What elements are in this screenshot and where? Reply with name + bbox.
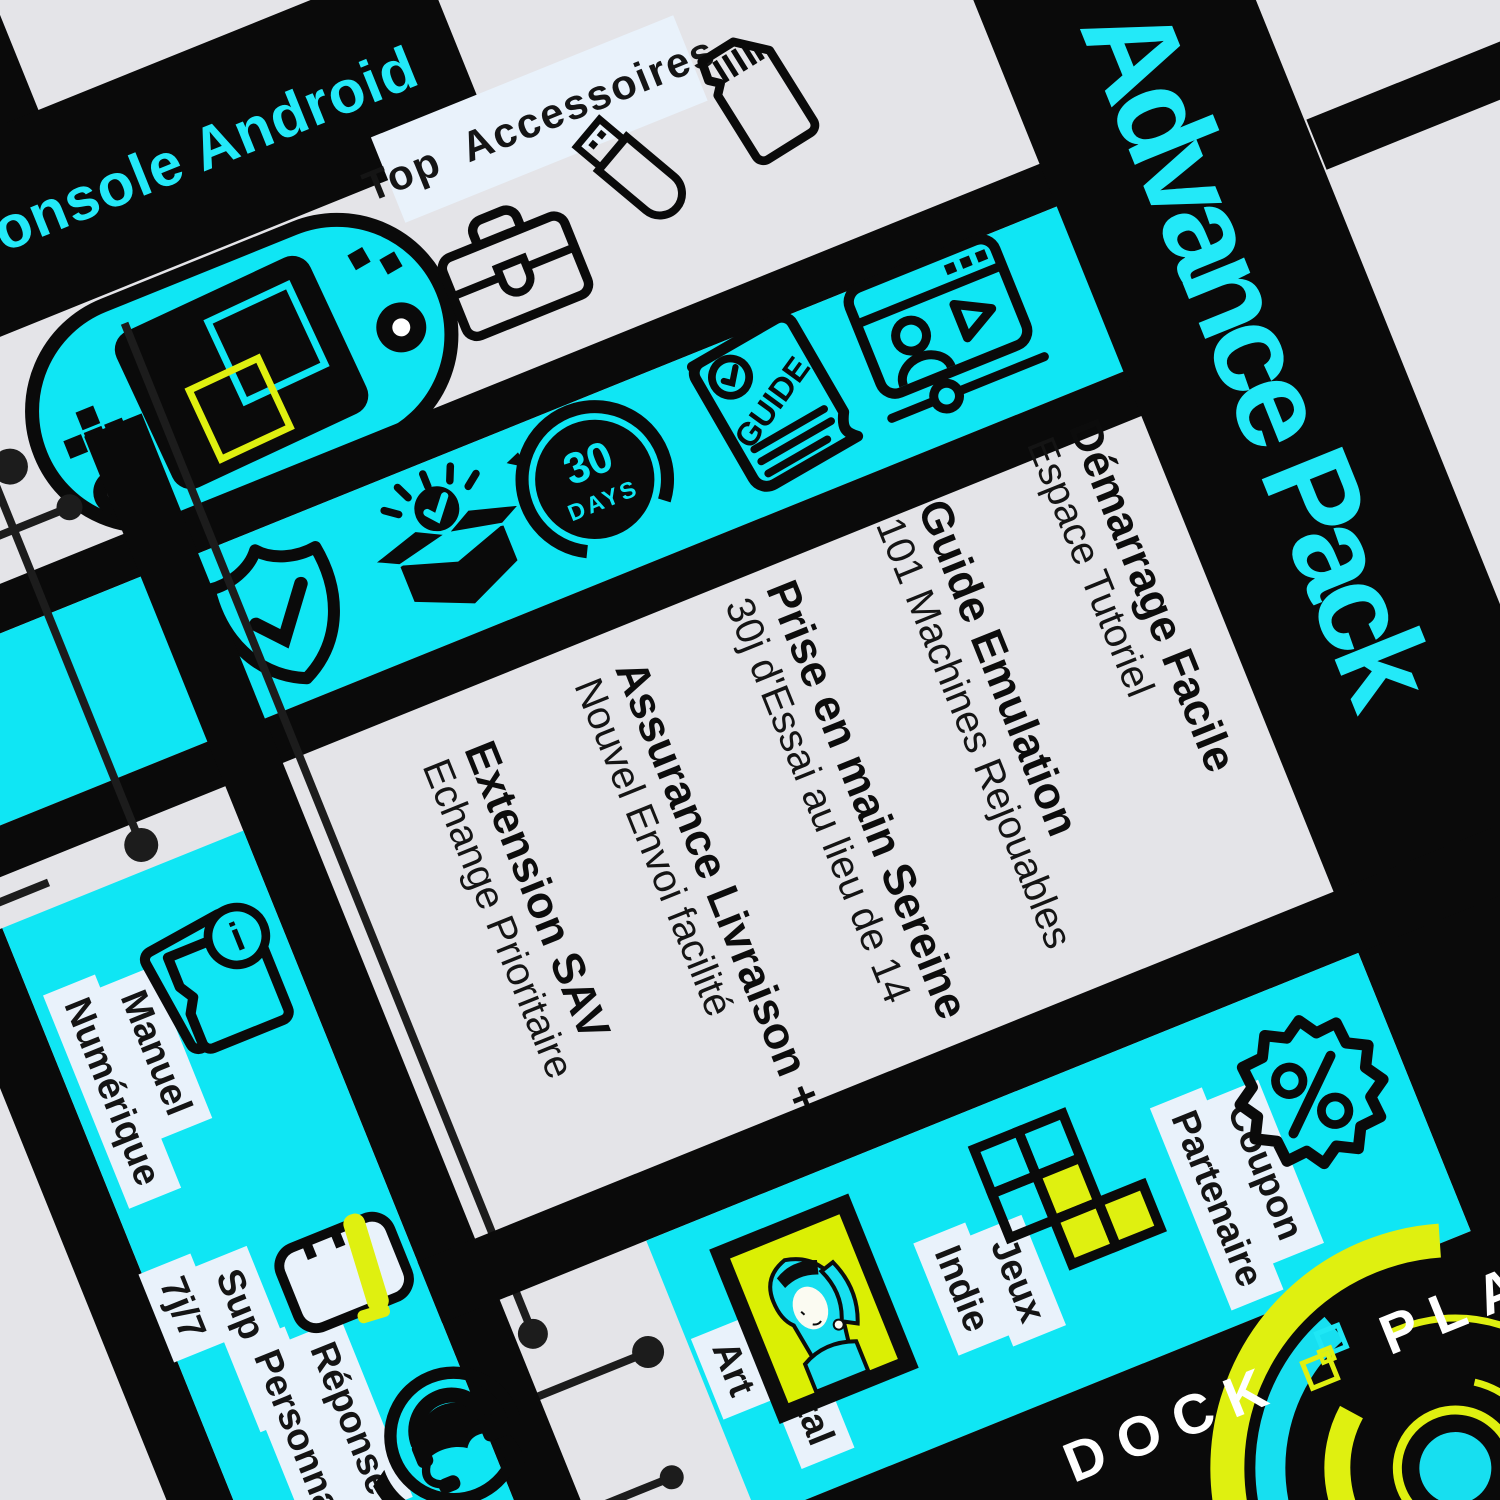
poster-canvas: Console Android Top Accessoires (0, 0, 1500, 1500)
discount-badge-icon (1214, 996, 1411, 1193)
circuit-node (0, 443, 33, 490)
circuit-node (119, 823, 163, 867)
circuit-node (656, 1462, 687, 1493)
circuit-node (627, 1331, 669, 1373)
divider-band (1306, 0, 1500, 170)
promo-poster: Console Android Top Accessoires (0, 0, 1500, 1500)
squares-logo-icon (1289, 1316, 1372, 1399)
